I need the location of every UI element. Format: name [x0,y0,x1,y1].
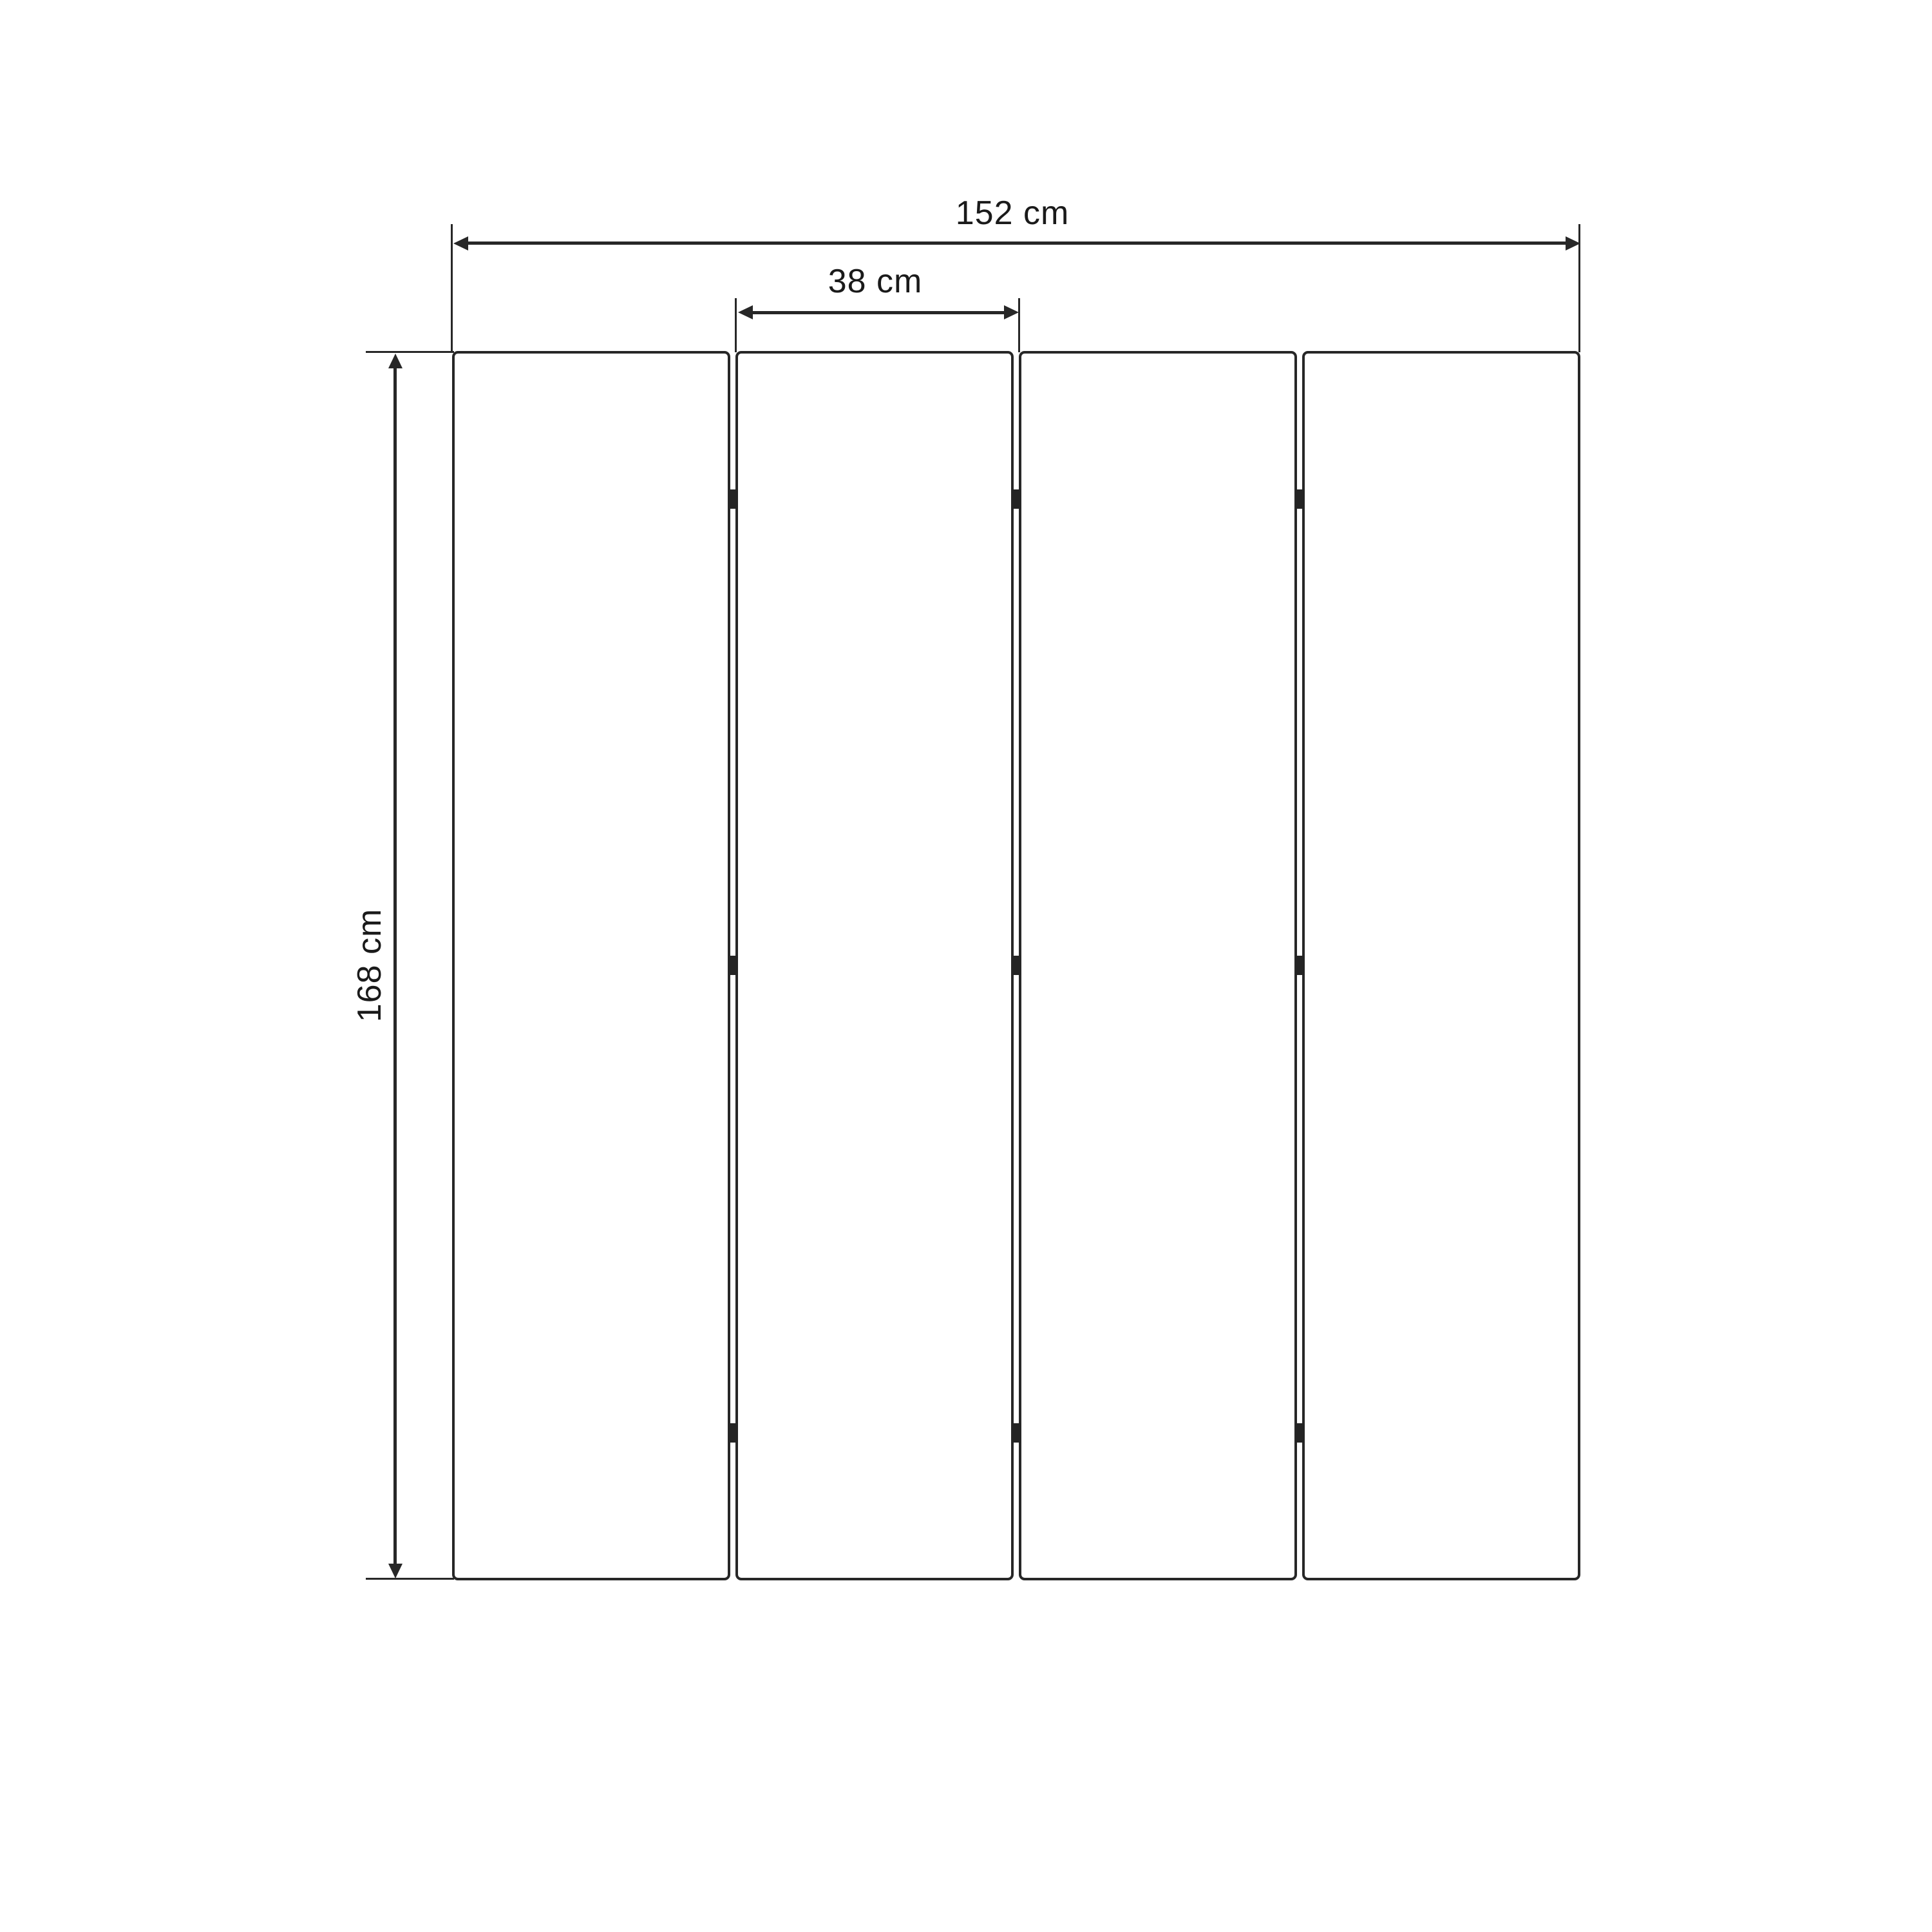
panel-width-label: 38 cm [828,265,923,298]
hinge [1296,956,1304,975]
total-width-dimension-line [464,241,1567,245]
screen-panel-2 [735,351,1014,1580]
hinge [1012,956,1021,975]
hinge [729,956,737,975]
panel-width-dimension-line [748,311,1007,314]
height-label: 168 cm [353,909,386,1023]
extension-line [451,224,453,352]
hinge [1296,489,1304,509]
hinge [1012,489,1021,509]
extension-line [366,1578,454,1580]
diagram-canvas: 152 cm 38 cm 168 cm [0,0,1932,1932]
screen-panel-3 [1019,351,1297,1580]
arrowhead-right-icon [1566,236,1580,251]
hinge [1012,1423,1021,1443]
hinge [729,1423,737,1443]
arrowhead-down-icon [388,1564,402,1578]
extension-line [366,351,454,353]
hinge [729,489,737,509]
arrowhead-up-icon [388,354,402,368]
hinge [1296,1423,1304,1443]
arrowhead-right-icon [1004,305,1019,319]
screen-panel-1 [452,351,730,1580]
total-width-label: 152 cm [956,196,1070,230]
extension-line [735,298,737,352]
arrowhead-left-icon [738,305,753,319]
height-dimension-line [393,365,397,1566]
arrowhead-left-icon [453,236,468,251]
screen-panel-4 [1302,351,1580,1580]
